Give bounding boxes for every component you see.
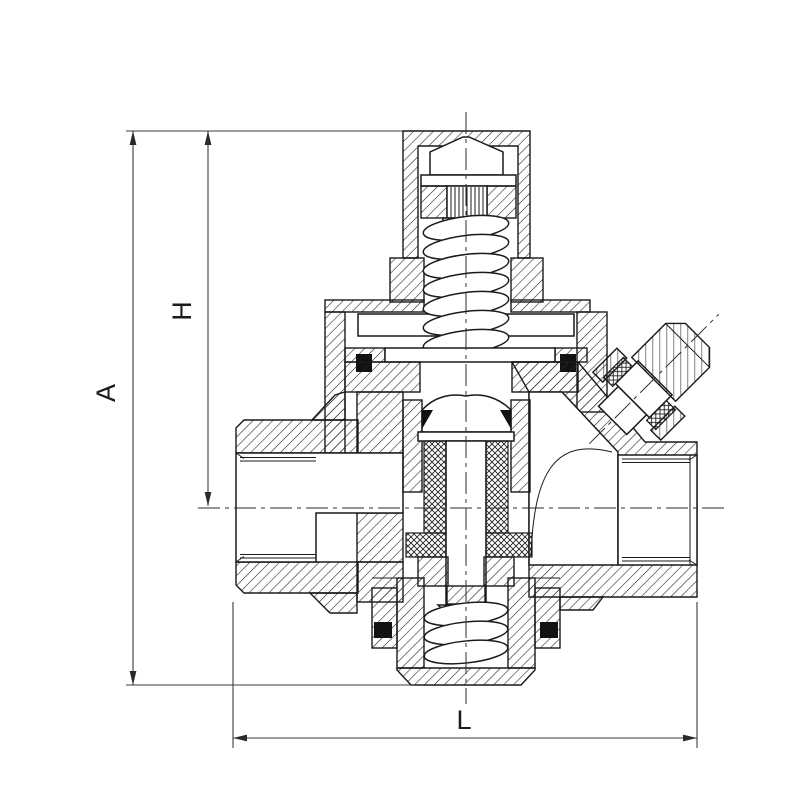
cap-skirt-left — [372, 588, 397, 648]
bonnet-wall-right — [511, 258, 543, 302]
drawing-canvas: A H L — [0, 0, 800, 800]
outlet-bore — [618, 455, 697, 565]
adjuster-nut-left — [421, 186, 447, 218]
dimension-a-label: A — [91, 384, 121, 402]
body-underside-step-left — [310, 593, 357, 613]
bonnet-flange-right — [511, 300, 590, 312]
cage-wall-right — [511, 400, 530, 492]
cage-wall-left — [403, 400, 422, 492]
body-block-center-left-lower — [357, 513, 403, 562]
dimension-l: L — [233, 705, 697, 741]
cap-wall-right — [508, 578, 535, 668]
o-ring-lower-left — [374, 622, 392, 638]
filter-column-right — [486, 441, 508, 533]
outlet-port — [618, 455, 697, 565]
adjuster-nut-right — [487, 186, 516, 218]
o-ring-lower-right — [540, 622, 558, 638]
seal-disc-left — [406, 533, 446, 557]
inlet-top-band — [236, 420, 358, 453]
body-underside-step-right — [560, 597, 603, 610]
cap-skirt-right — [535, 588, 560, 648]
screw-washer — [421, 175, 516, 186]
inlet-port — [236, 392, 403, 613]
cap-wall-left — [397, 578, 424, 668]
inlet-bottom-band — [236, 562, 358, 593]
seal-disc-right — [486, 533, 532, 557]
filter-column-left — [424, 441, 446, 533]
dimension-a: A — [91, 131, 136, 685]
spring-seat-plate — [385, 348, 555, 362]
bonnet-flange-left — [325, 300, 424, 312]
dimension-h: H — [167, 131, 211, 506]
valve-cross-section-drawing: A H L — [0, 0, 800, 800]
body-band-left — [345, 362, 420, 392]
bonnet-wall-left — [390, 258, 424, 302]
body-block-center-left-upper — [357, 392, 403, 453]
dimension-h-label: H — [167, 301, 197, 321]
valve-assembly — [236, 131, 753, 685]
dimension-l-label: L — [456, 705, 471, 735]
